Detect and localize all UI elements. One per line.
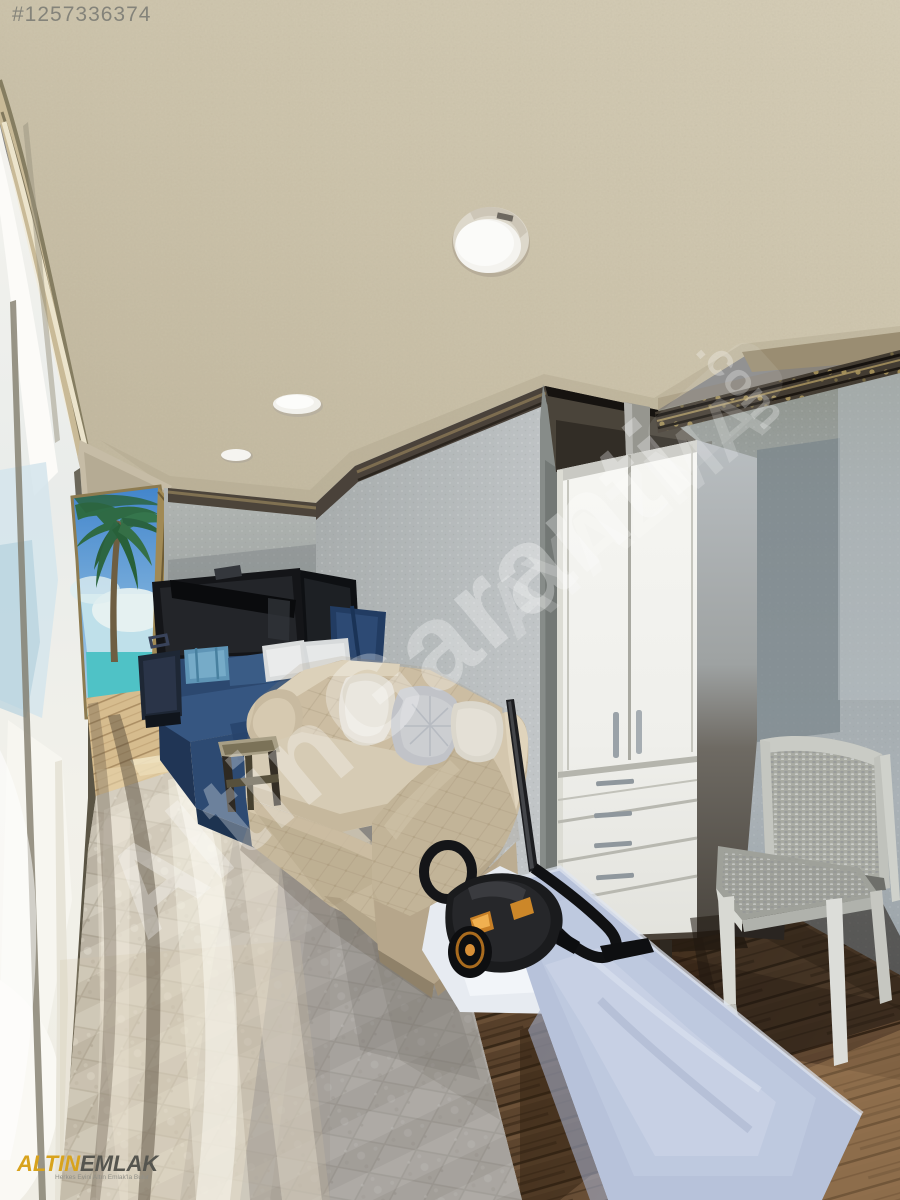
svg-text:ALTIN: ALTIN — [16, 1151, 81, 1176]
svg-text:#1257336374: #1257336374 — [12, 3, 151, 26]
svg-text:EMLAK: EMLAK — [80, 1151, 160, 1176]
svg-text:Herkes Evini Altın Emlak'la Bu: Herkes Evini Altın Emlak'la Bulur — [55, 1174, 150, 1181]
